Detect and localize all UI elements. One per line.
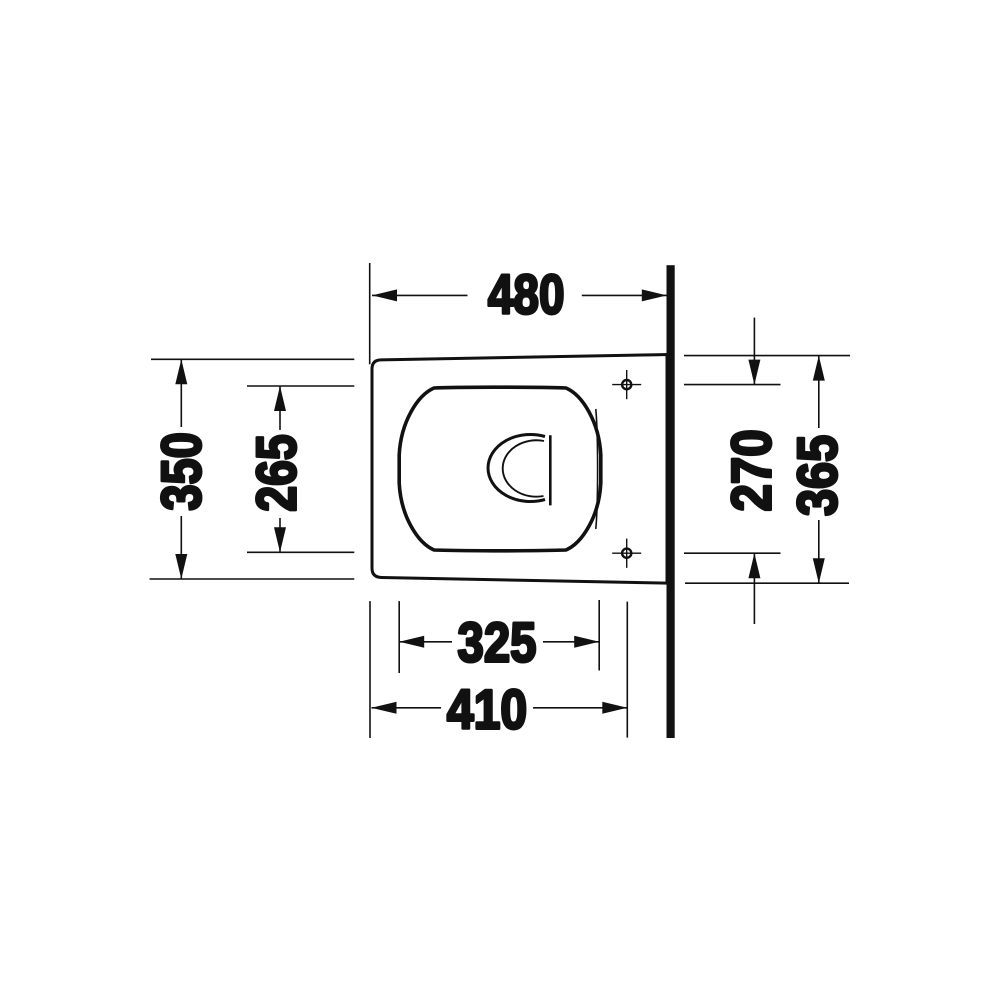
svg-text:270: 270 bbox=[721, 429, 784, 511]
svg-text:410: 410 bbox=[447, 679, 527, 741]
svg-text:365: 365 bbox=[787, 435, 850, 516]
svg-text:480: 480 bbox=[488, 263, 565, 325]
svg-text:350: 350 bbox=[150, 432, 213, 510]
svg-text:265: 265 bbox=[244, 434, 307, 512]
svg-text:325: 325 bbox=[458, 611, 537, 674]
